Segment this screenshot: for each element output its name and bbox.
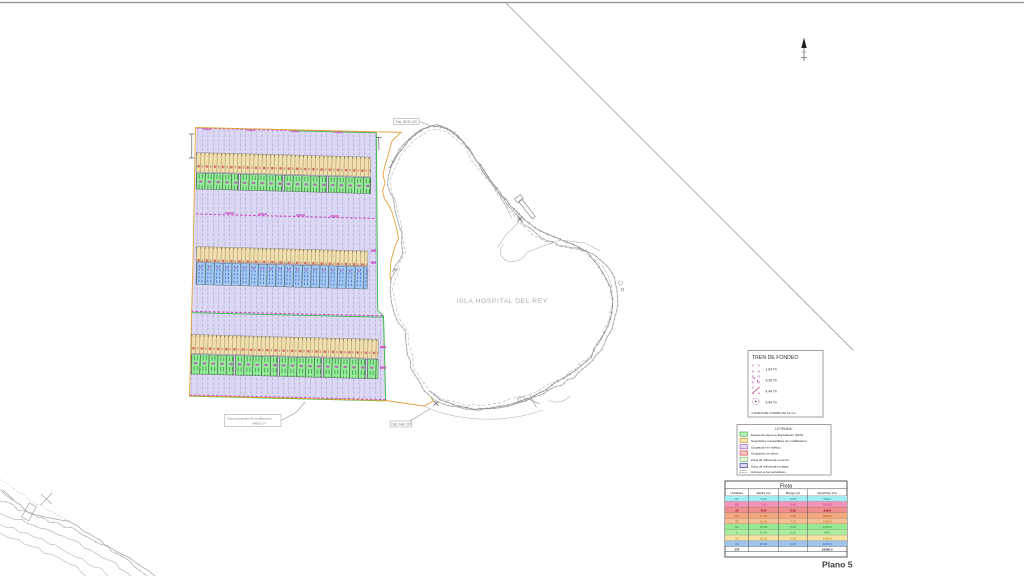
svg-text:13: 13 [735, 536, 739, 540]
svg-text:88.0: 88.0 [824, 531, 830, 535]
svg-text:4160.0: 4160.0 [823, 525, 833, 529]
svg-text:Plano 5: Plano 5 [822, 560, 853, 570]
svg-text:Zona susceptible de modificaci: Zona susceptible de modificación [227, 416, 272, 420]
svg-text:378: 378 [734, 547, 739, 551]
svg-text:ANEXO nº: ANEXO nº [252, 422, 267, 426]
svg-text:Espejo de Agua en Explotación: Espejo de Agua en Explotación (SAS) [751, 433, 803, 437]
svg-text:ISLA HOSPITAL DEL REY: ISLA HOSPITAL DEL REY [457, 298, 548, 305]
svg-text:64: 64 [735, 525, 739, 529]
svg-text:3605.0: 3605.0 [823, 514, 833, 518]
svg-text:Accesos a los portadores: Accesos a los portadores [751, 470, 786, 474]
svg-text:Manga (m): Manga (m) [786, 491, 801, 495]
svg-text:20.00: 20.00 [760, 542, 768, 546]
svg-text:1200.0: 1200.0 [823, 542, 833, 546]
svg-text:LEYENDA:: LEYENDA: [775, 427, 792, 431]
svg-text:Ocupación en edificio: Ocupación en edificio [751, 445, 781, 449]
svg-text:8.00: 8.00 [761, 508, 767, 512]
svg-text:10.00: 10.00 [760, 514, 768, 518]
svg-text:12.00: 12.00 [760, 520, 768, 524]
svg-text:Ocupación en tierra: Ocupación en tierra [751, 452, 778, 456]
svg-text:Zona de influencia en tierra: Zona de influencia en tierra [751, 458, 789, 462]
svg-text:Dist. BCN 220: Dist. BCN 220 [396, 120, 418, 124]
svg-text:Superficie (m²): Superficie (m²) [817, 491, 837, 495]
svg-text:103: 103 [734, 514, 739, 518]
svg-text:Dist. AAC 297: Dist. AAC 297 [392, 423, 412, 427]
svg-text:Unidades: Unidades [730, 491, 743, 495]
svg-text:Flota: Flota [780, 483, 792, 489]
svg-text:102: 102 [734, 503, 739, 507]
svg-text:CADENA DE FONDEO DE 22 mm: CADENA DE FONDEO DE 22 mm [752, 411, 797, 415]
svg-text:Zona de influencia en agua: Zona de influencia en agua [751, 464, 789, 468]
svg-text:4.44 Tn: 4.44 Tn [766, 390, 778, 394]
svg-text:10: 10 [735, 542, 739, 546]
svg-text:5.50: 5.50 [790, 531, 796, 535]
svg-text:Eslora (m): Eslora (m) [757, 491, 771, 495]
svg-text:7.00: 7.00 [761, 503, 767, 507]
svg-text:1.64 Tn: 1.64 Tn [766, 368, 778, 372]
svg-text:5.00: 5.00 [761, 497, 767, 501]
svg-text:5.00: 5.00 [790, 525, 796, 529]
svg-text:3.50: 3.50 [790, 514, 796, 518]
svg-text:6.44 Tn: 6.44 Tn [766, 400, 778, 404]
svg-text:16084.5: 16084.5 [822, 547, 833, 551]
svg-text:3.10: 3.10 [790, 508, 796, 512]
svg-text:1404.0: 1404.0 [823, 536, 833, 540]
svg-text:2208.0: 2208.0 [823, 520, 833, 524]
svg-text:TREN DE FONDEO: TREN DE FONDEO [752, 355, 798, 361]
svg-text:18.00: 18.00 [760, 536, 768, 540]
svg-text:46: 46 [735, 520, 739, 524]
svg-text:2142.0: 2142.0 [823, 503, 833, 507]
svg-text:396.8: 396.8 [824, 508, 832, 512]
svg-text:4.00: 4.00 [790, 520, 796, 524]
svg-text:Superficies susceptibles de mo: Superficies susceptibles de modificación [751, 439, 807, 443]
svg-text:3.00: 3.00 [790, 503, 796, 507]
svg-text:6.00: 6.00 [790, 536, 796, 540]
svg-text:230.0: 230.0 [824, 497, 832, 501]
svg-text:16: 16 [735, 508, 739, 512]
svg-text:23: 23 [735, 497, 739, 501]
svg-text:2.00: 2.00 [790, 497, 796, 501]
svg-text:6.00: 6.00 [790, 542, 796, 546]
svg-text:16.00: 16.00 [760, 531, 768, 535]
svg-text:13.00: 13.00 [760, 525, 768, 529]
svg-text:3.29 Tn: 3.29 Tn [766, 379, 778, 383]
